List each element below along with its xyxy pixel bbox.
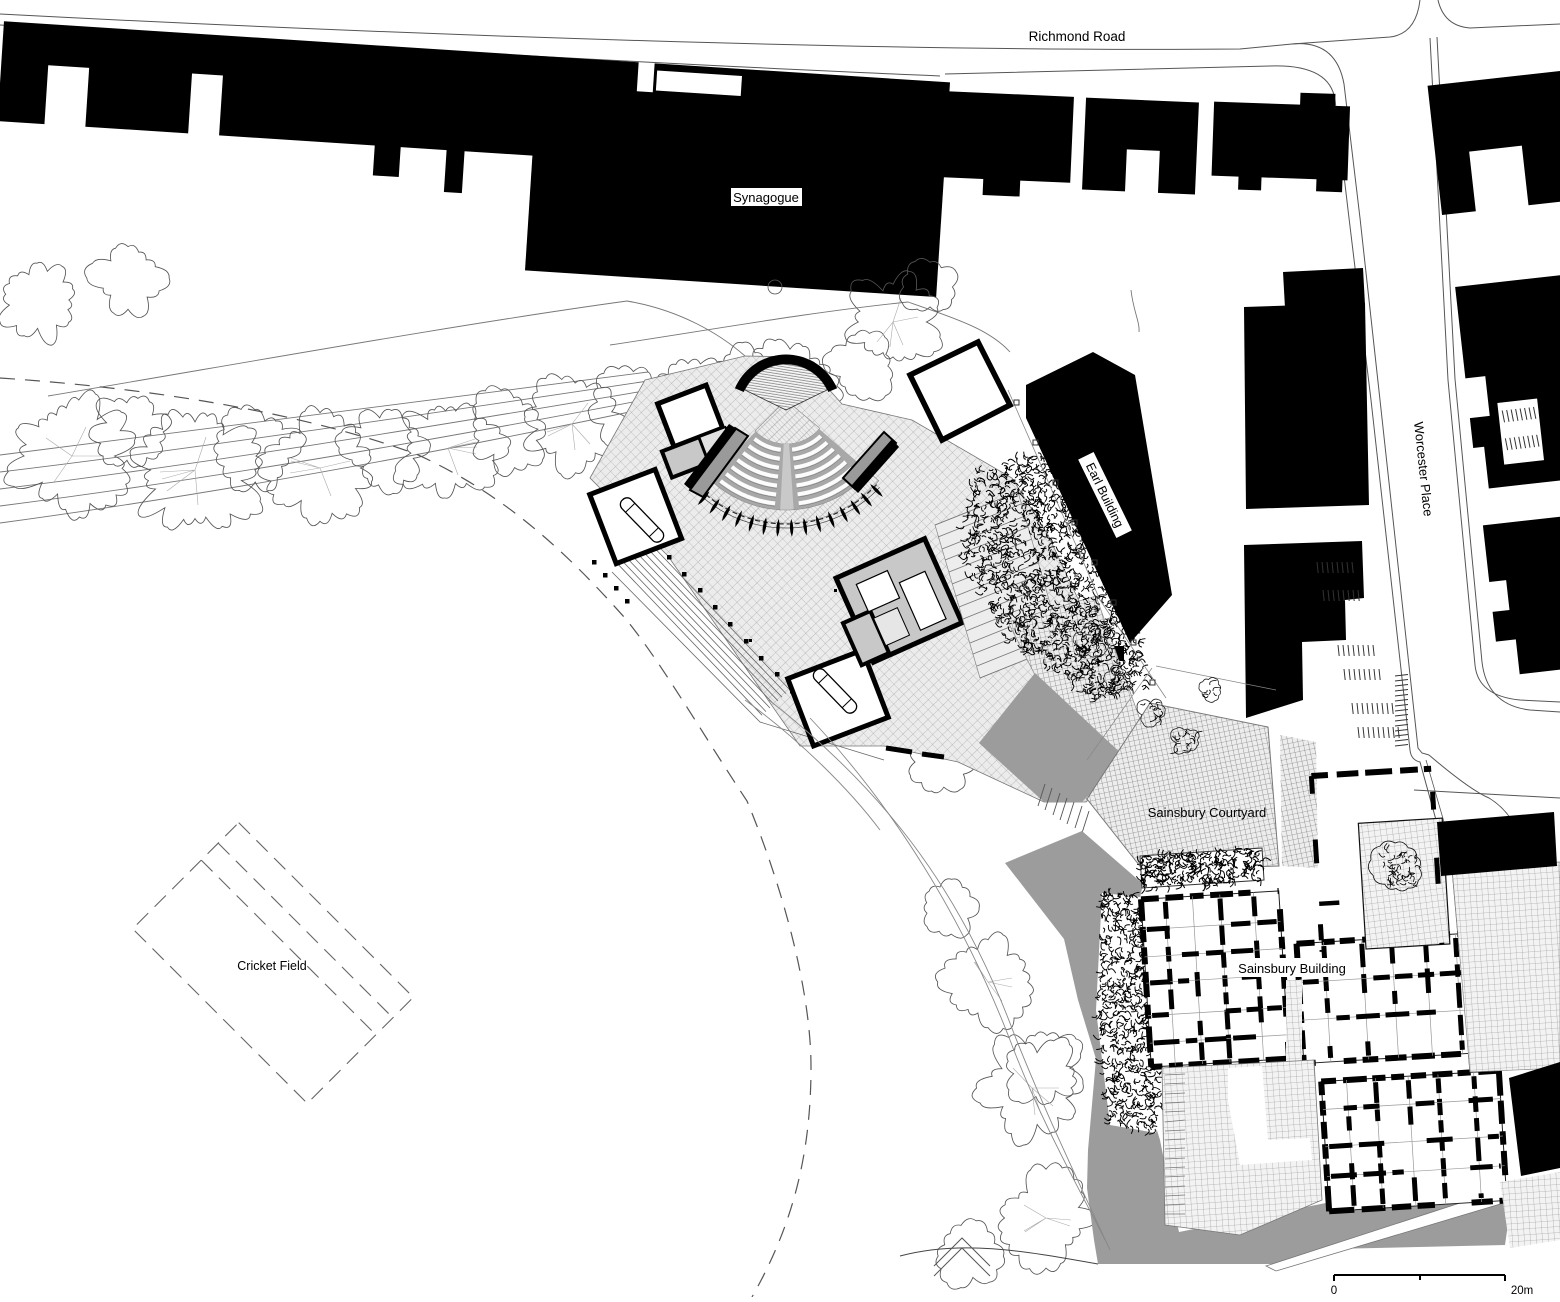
svg-text:Richmond Road: Richmond Road bbox=[1029, 29, 1126, 44]
svg-text:Cricket Field: Cricket Field bbox=[237, 959, 307, 973]
svg-text:Sainsbury Courtyard: Sainsbury Courtyard bbox=[1148, 805, 1267, 820]
svg-text:20m: 20m bbox=[1511, 1285, 1533, 1297]
svg-text:Synagogue: Synagogue bbox=[733, 190, 799, 205]
svg-text:Sainsbury Building: Sainsbury Building bbox=[1238, 961, 1346, 976]
svg-text:0: 0 bbox=[1331, 1285, 1337, 1297]
